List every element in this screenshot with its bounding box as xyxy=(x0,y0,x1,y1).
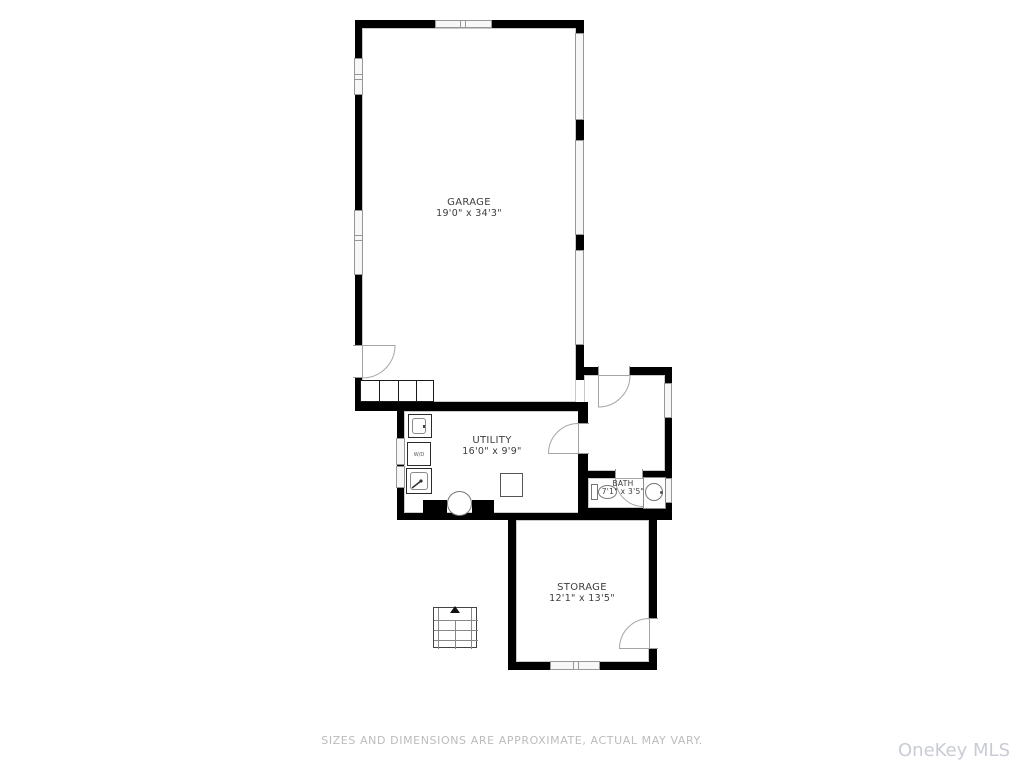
vestibule-west-wall xyxy=(578,402,588,520)
stairs-icon xyxy=(433,607,477,648)
utility-west-window-2 xyxy=(396,466,405,488)
garage-west-window-1 xyxy=(354,58,363,95)
appliance-knob xyxy=(423,425,425,428)
cabinet-divider xyxy=(379,381,380,401)
utility-counter-left xyxy=(423,500,447,513)
garage-south-wall xyxy=(355,402,584,411)
storage-dims: 12'1" x 13'5" xyxy=(502,593,662,604)
window-mullion xyxy=(460,20,466,28)
utility-name: UTILITY xyxy=(412,435,572,446)
garage-east-door-panel-2 xyxy=(575,140,584,235)
garage-room-label: GARAGE 19'0" x 34'3" xyxy=(389,197,549,219)
stairs-tread xyxy=(434,630,478,631)
utility-room-label: UTILITY 16'0" x 9'9" xyxy=(412,435,572,457)
utility-sink xyxy=(406,468,432,494)
stairs-center-line xyxy=(455,620,456,649)
faucet-icon xyxy=(407,469,433,495)
watermark-text: OneKey MLS xyxy=(898,740,1010,761)
window-mullion xyxy=(354,74,363,80)
bath-room-label: BATH 7'1" x 3'5" xyxy=(573,480,673,496)
garage-west-door-arc xyxy=(362,345,396,379)
garage-name: GARAGE xyxy=(389,197,549,208)
garage-north-window xyxy=(435,20,492,28)
window-mullion xyxy=(573,661,579,670)
stairs-up-arrow-icon xyxy=(450,606,460,613)
stairs-tread xyxy=(434,640,478,641)
garage-west-window-2 xyxy=(354,210,363,275)
disclaimer-text: SIZES AND DIMENSIONS ARE APPROXIMATE, AC… xyxy=(0,734,1024,747)
furnace xyxy=(500,473,523,497)
utility-south-wall xyxy=(397,513,672,520)
garage-cabinets xyxy=(360,380,434,402)
cabinet-divider xyxy=(398,381,399,401)
cabinet-divider xyxy=(416,381,417,401)
vestibule-east-window xyxy=(664,383,672,418)
stairs-tread xyxy=(434,620,478,621)
utility-dims: 16'0" x 9'9" xyxy=(412,446,572,457)
stairs-left-rail xyxy=(438,608,439,649)
garage-east-door-panel-3 xyxy=(575,250,584,345)
floorplan-canvas: W/D GARAGE 19'0" x 34'3" UTILITY 16'0" x… xyxy=(0,0,1024,768)
water-heater xyxy=(447,491,472,516)
storage-south-window xyxy=(550,661,600,670)
utility-west-window-1 xyxy=(396,438,405,465)
storage-door-arc xyxy=(619,618,650,649)
storage-name: STORAGE xyxy=(502,582,662,593)
garage-east-door-panel-1 xyxy=(575,33,584,120)
utility-counter-right xyxy=(472,500,494,513)
garage-dims: 19'0" x 34'3" xyxy=(389,208,549,219)
storage-room-label: STORAGE 12'1" x 13'5" xyxy=(502,582,662,604)
stairs-right-rail xyxy=(471,608,472,649)
bath-dims: 7'1" x 3'5" xyxy=(573,488,673,496)
vestibule-door-arc xyxy=(598,375,631,408)
window-mullion xyxy=(354,235,363,241)
